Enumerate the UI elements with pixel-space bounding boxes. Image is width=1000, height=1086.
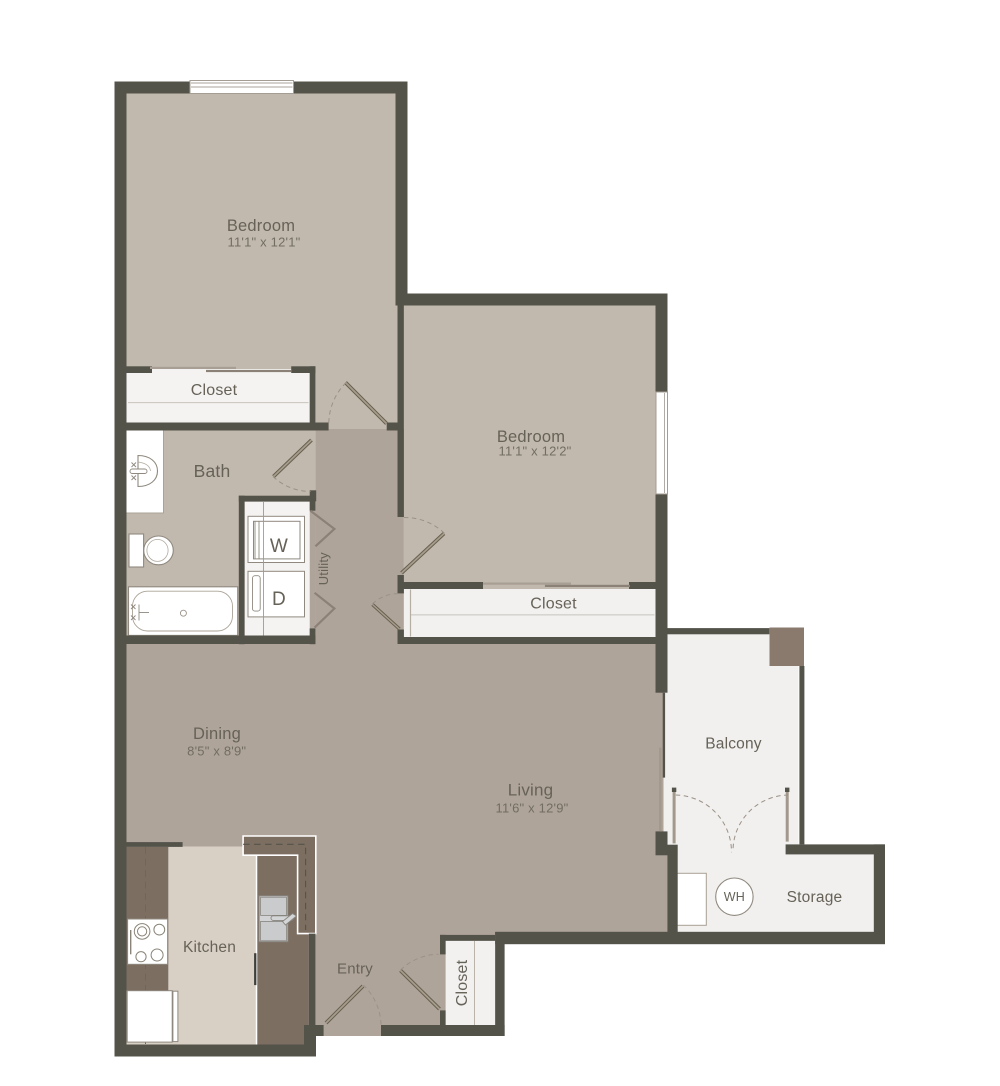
svg-text:Utility: Utility <box>316 552 331 585</box>
svg-text:WH: WH <box>724 890 745 904</box>
svg-text:Balcony: Balcony <box>705 736 762 753</box>
svg-text:Entry: Entry <box>337 960 373 977</box>
svg-text:Closet: Closet <box>191 382 238 399</box>
svg-text:Bath: Bath <box>194 461 231 481</box>
svg-text:D: D <box>272 589 286 610</box>
svg-text:11'1" x 12'1": 11'1" x 12'1" <box>228 235 301 250</box>
svg-text:Living: Living <box>508 781 554 800</box>
svg-text:W: W <box>270 536 288 557</box>
svg-text:Dining: Dining <box>193 725 241 743</box>
svg-text:11'6" x 12'9": 11'6" x 12'9" <box>496 801 569 816</box>
svg-text:Bedroom: Bedroom <box>227 217 295 235</box>
svg-text:Closet: Closet <box>530 595 577 612</box>
svg-text:8'5" x 8'9": 8'5" x 8'9" <box>187 744 246 759</box>
svg-text:11'1" x 12'2": 11'1" x 12'2" <box>499 444 572 459</box>
svg-text:Kitchen: Kitchen <box>183 939 236 956</box>
svg-text:Closet: Closet <box>454 959 471 1006</box>
svg-text:Storage: Storage <box>787 889 843 906</box>
